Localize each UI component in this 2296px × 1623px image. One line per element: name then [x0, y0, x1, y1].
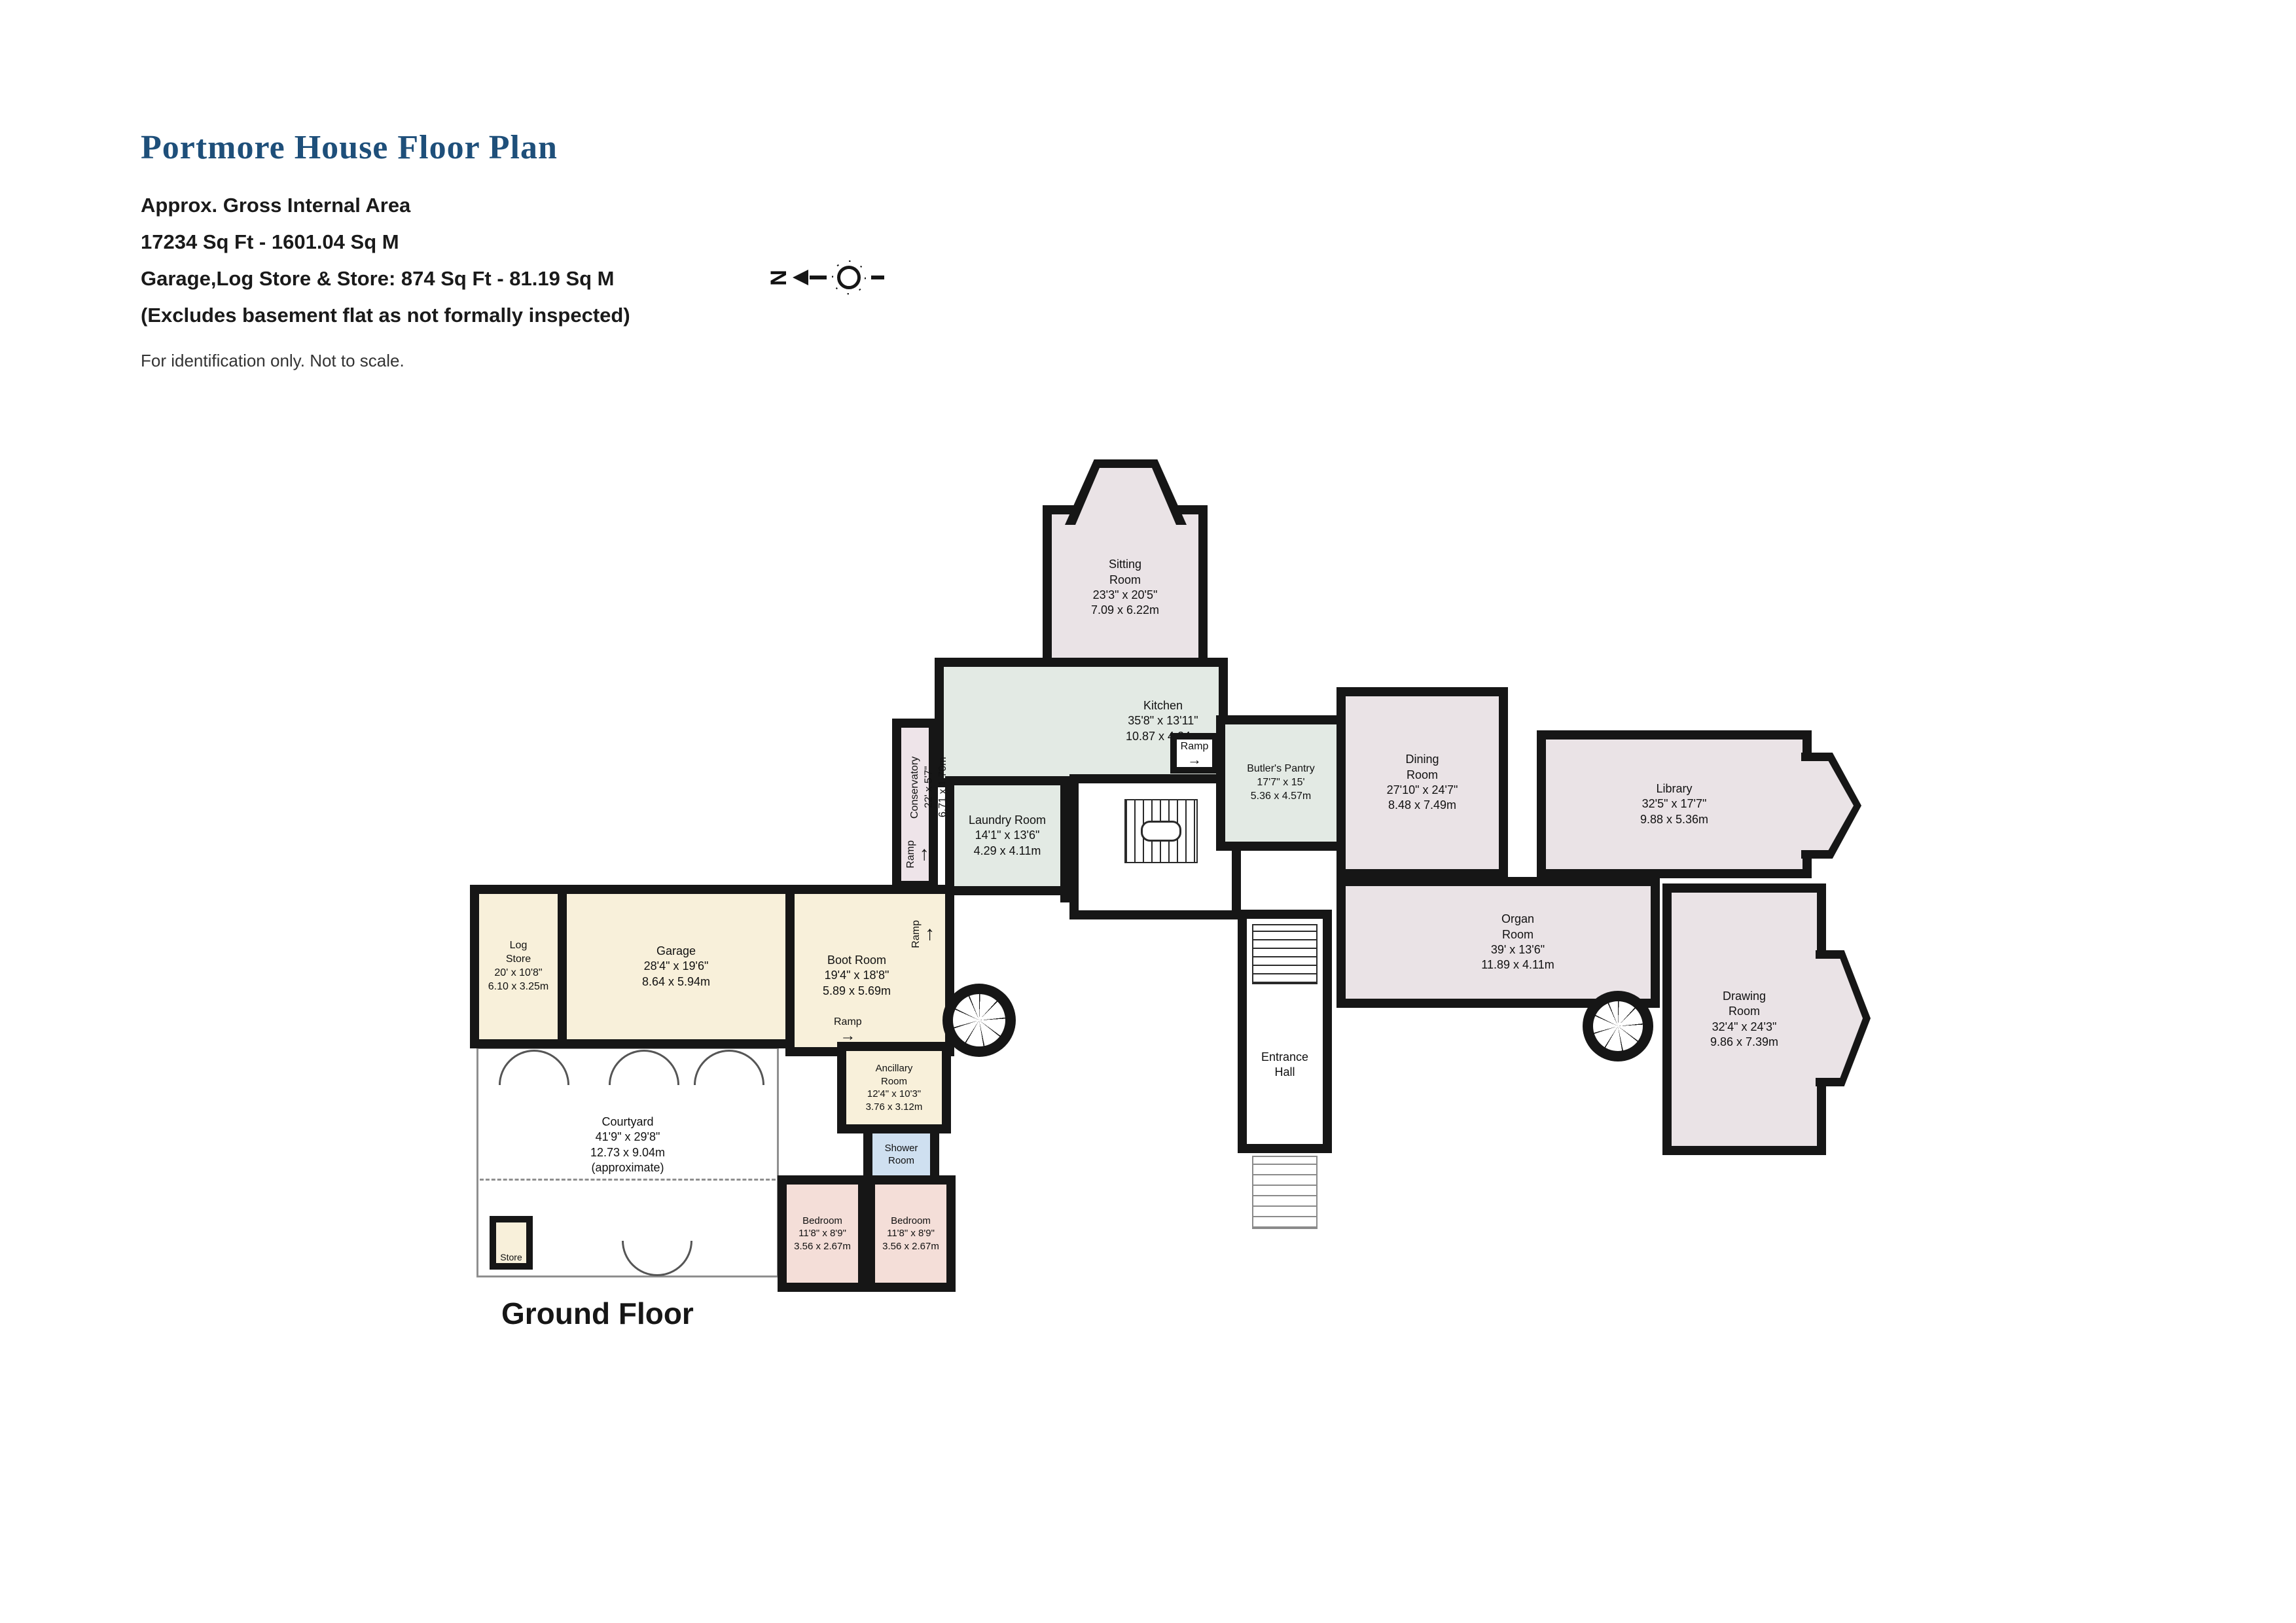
room-garage-label: Garage 28'4" x 19'6" 8.64 x 5.94m: [642, 944, 710, 990]
room-store: Store: [490, 1216, 533, 1270]
ramp-label-kitchen: Ramp →: [1181, 741, 1209, 766]
room-organ-label: Organ Room 39' x 13'6" 11.89 x 4.11m: [1481, 912, 1554, 973]
sun-icon: [832, 260, 866, 294]
bay-window-sitting: [1065, 459, 1187, 525]
excludes-note: (Excludes basement flat as not formally …: [141, 304, 630, 327]
room-conservatory: Conservatory 22' x 5'7" 6.71 x 1.70m Ram…: [892, 719, 938, 890]
room-butlers-pantry-label: Butler's Pantry 17'7" x 15' 5.36 x 4.57m: [1247, 762, 1315, 803]
courtyard-dashed-divider: [480, 1179, 776, 1181]
ramp-passage: Ramp →: [1170, 733, 1219, 774]
room-log-store: Log Store 20' x 10'8" 6.10 x 3.25m: [470, 885, 567, 1048]
room-library-label: Library 32'5" x 17'7" 9.88 x 5.36m: [1640, 781, 1708, 827]
bay-window-library: [1801, 753, 1861, 859]
room-sitting: Sitting Room 23'3" x 20'5" 7.09 x 6.22m: [1043, 505, 1208, 670]
page-title: Portmore House Floor Plan: [141, 128, 558, 167]
room-butlers-pantry: Butler's Pantry 17'7" x 15' 5.36 x 4.57m: [1216, 715, 1346, 851]
compass-north-letter: N: [766, 270, 792, 286]
room-library: Library 32'5" x 17'7" 9.88 x 5.36m: [1537, 730, 1812, 878]
room-drawing-label: Drawing Room 32'4" x 24'3" 9.86 x 7.39m: [1710, 989, 1778, 1050]
room-drawing: Drawing Room 32'4" x 24'3" 9.86 x 7.39m: [1662, 883, 1826, 1155]
room-bedroom-2: Bedroom 11'8" x 8'9" 3.56 x 2.67m: [866, 1175, 956, 1292]
room-laundry-label: Laundry Room 14'1" x 13'6" 4.29 x 4.11m: [969, 813, 1046, 859]
room-log-store-label: Log Store 20' x 10'8" 6.10 x 3.25m: [488, 939, 549, 993]
room-boot-label: Boot Room 19'4" x 18'8" 5.89 x 5.69m: [808, 953, 906, 999]
room-organ: Organ Room 39' x 13'6" 11.89 x 4.11m: [1336, 877, 1660, 1008]
room-bedroom1-label: Bedroom 11'8" x 8'9" 3.56 x 2.67m: [794, 1215, 851, 1253]
ramp-label-conservatory: Ramp ↑: [904, 840, 929, 868]
room-store-label: Store: [500, 1251, 522, 1263]
ramp-arrow-up-icon: ↑: [920, 843, 929, 865]
room-garage: Garage 28'4" x 19'6" 8.64 x 5.94m: [558, 885, 795, 1048]
room-dining-label: Dining Room 27'10" x 24'7" 8.48 x 7.49m: [1387, 752, 1458, 813]
north-arrow-icon: [793, 270, 808, 285]
compass-icon: N: [771, 260, 884, 294]
north-arrow-tail: [810, 276, 827, 279]
disclaimer-text: For identification only. Not to scale.: [141, 351, 404, 371]
ramp-label-boot-vertical: Ramp ↑: [909, 920, 935, 948]
room-dining: Dining Room 27'10" x 24'7" 8.48 x 7.49m: [1336, 687, 1508, 878]
winder-staircase-icon: [1124, 799, 1198, 863]
spiral-staircase-icon-boot: [942, 984, 1016, 1057]
ramp-label-boot-horizontal: Ramp →: [834, 1016, 862, 1042]
ramp-arrow-right-icon: →: [1187, 754, 1202, 766]
bay-window-drawing: [1816, 950, 1871, 1086]
entrance-staircase-icon: [1252, 924, 1318, 984]
ramp-arrow-right-icon: →: [840, 1029, 855, 1042]
room-conservatory-label: Conservatory 22' x 5'7" 6.71 x 1.70m: [908, 738, 950, 836]
stair-handrail: [1141, 821, 1181, 842]
entrance-steps-icon: [1252, 1156, 1318, 1229]
stair-hall: [1069, 774, 1241, 919]
floor-name-label: Ground Floor: [501, 1296, 694, 1331]
gross-area-heading: Approx. Gross Internal Area: [141, 194, 410, 217]
courtyard-label: Courtyard 41'9" x 29'8" 12.73 x 9.04m (a…: [478, 1115, 777, 1176]
room-bedroom-1: Bedroom 11'8" x 8'9" 3.56 x 2.67m: [778, 1175, 867, 1292]
compass-dash: [871, 276, 884, 279]
room-bedroom2-label: Bedroom 11'8" x 8'9" 3.56 x 2.67m: [882, 1215, 939, 1253]
room-sitting-label: Sitting Room 23'3" x 20'5" 7.09 x 6.22m: [1091, 557, 1159, 618]
room-boot: Boot Room 19'4" x 18'8" 5.89 x 5.69m Ram…: [785, 885, 954, 1056]
spiral-staircase-icon-main: [1583, 991, 1653, 1061]
room-entrance-hall: Entrance Hall: [1238, 910, 1332, 1153]
room-laundry: Laundry Room 14'1" x 13'6" 4.29 x 4.11m: [945, 776, 1069, 895]
garage-area-value: Garage,Log Store & Store: 874 Sq Ft - 81…: [141, 267, 615, 291]
floorplan-page: Portmore House Floor Plan Approx. Gross …: [0, 0, 2296, 1623]
ramp-arrow-up-icon: ↑: [925, 923, 935, 945]
gross-area-value: 17234 Sq Ft - 1601.04 Sq M: [141, 230, 399, 254]
room-shower-label: Shower Room: [885, 1142, 918, 1168]
room-ancillary-label: Ancillary Room 12'4" x 10'3" 3.76 x 3.12…: [866, 1062, 923, 1113]
room-ancillary: Ancillary Room 12'4" x 10'3" 3.76 x 3.12…: [837, 1042, 951, 1133]
room-entrance-label: Entrance Hall: [1247, 1050, 1323, 1080]
